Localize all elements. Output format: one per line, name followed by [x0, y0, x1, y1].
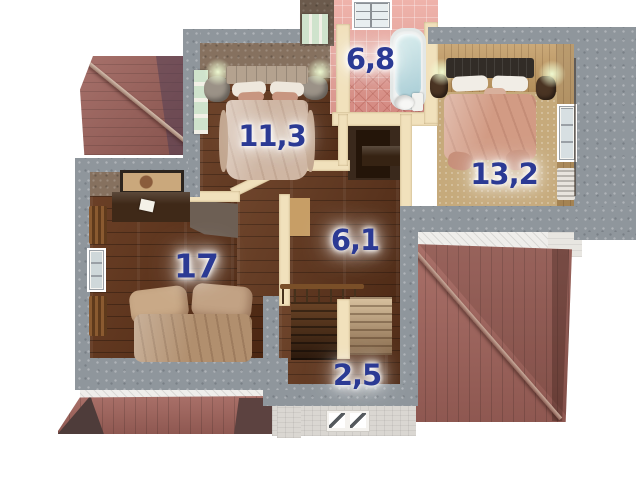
roof-bottom-right	[414, 244, 572, 422]
dormer-window-sash-left	[329, 413, 345, 428]
bed-left	[126, 282, 260, 362]
bedroom-left-window	[87, 248, 106, 292]
area-label-stair-landing: 2,5	[333, 358, 381, 392]
bed-right-headboard	[446, 58, 534, 78]
bed-top-drape-right	[306, 110, 315, 172]
bedroom-right-pipe	[574, 58, 576, 196]
area-label-bedroom-left: 17	[174, 247, 218, 286]
bedroom-left-window-panes	[91, 252, 102, 288]
bed-top-headboard	[226, 66, 308, 84]
lamp-glow-right-room-right	[538, 60, 566, 88]
bedroom-right-radiator	[557, 168, 575, 200]
toilet-bowl	[395, 95, 414, 110]
wall-picture	[120, 170, 184, 194]
brick-column-bottom	[277, 402, 301, 438]
area-label-bedroom-top: 11,3	[238, 119, 306, 153]
hallway-west-wall-face	[290, 198, 310, 236]
area-label-hallway: 6,1	[331, 223, 379, 257]
bathtub-water	[395, 34, 421, 98]
wall-bottom-bedroom-right	[410, 206, 636, 232]
bathroom-window-panes	[356, 3, 388, 27]
wall-top-bedroom-top	[186, 29, 304, 43]
dormer-window-sash-right	[350, 413, 366, 428]
wardrobe-mirror-top	[302, 14, 328, 44]
area-label-bathroom: 6,8	[346, 42, 394, 76]
roof-top-left	[80, 56, 188, 155]
bedroom-left-radiator-upper	[89, 206, 107, 244]
roof-bottom-left-dark-corner	[58, 396, 120, 434]
roof-bottom-left	[58, 396, 276, 434]
hall-bedroom-right-wall	[400, 114, 412, 210]
dormer-window	[326, 410, 370, 432]
stair-divider-wall	[337, 299, 350, 359]
area-label-bedroom-right: 13,2	[470, 157, 538, 191]
bed-left-duvet	[134, 314, 252, 362]
bed-right-pillow-left	[452, 75, 489, 92]
bedroom-left-radiator-lower	[89, 296, 107, 336]
wall-right-hallway	[400, 206, 418, 406]
wall-bottom-bedroom-left	[75, 358, 288, 390]
bedroom-right-window-panes	[561, 108, 573, 158]
stair-flight-down	[291, 302, 337, 360]
bed-top-drape-left	[219, 110, 228, 172]
roof-bottom-right-upper-slope	[414, 244, 572, 422]
hallway-dresser	[362, 146, 400, 166]
lamp-glow-top-right	[306, 58, 334, 86]
stair-flight-up	[350, 297, 392, 355]
floor-plan-canvas: 11,3 6,8 13,2 17 6,1 2,5	[0, 0, 640, 480]
bathroom-hall-stub-wall	[338, 114, 348, 166]
bathroom-window	[352, 0, 392, 30]
